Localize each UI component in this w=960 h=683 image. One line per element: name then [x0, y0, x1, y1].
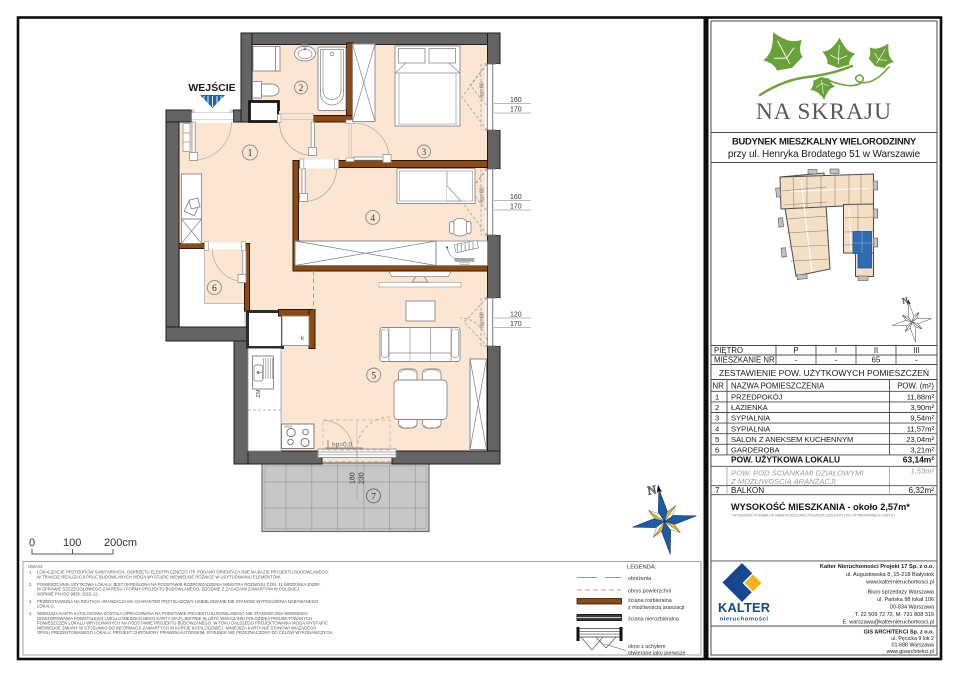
svg-text:hp=60: hp=60: [480, 82, 486, 97]
svg-text:ŁAZIENKA: ŁAZIENKA: [731, 403, 769, 412]
svg-text:NR: NR: [713, 382, 725, 391]
svg-text:170: 170: [510, 204, 522, 211]
svg-text:63,14m²: 63,14m²: [903, 455, 934, 465]
svg-text:3,90m²: 3,90m²: [910, 403, 934, 412]
svg-text:NORMIE PN-ISO 9836: 2015-12.: NORMIE PN-ISO 9836: 2015-12.: [37, 591, 99, 596]
svg-text:6: 6: [715, 446, 719, 455]
svg-text:-: -: [835, 356, 838, 365]
svg-text:170: 170: [510, 321, 522, 328]
svg-text:POW. UŻYTKOWA LOKALU: POW. UŻYTKOWA LOKALU: [731, 455, 840, 465]
svg-text:BUDYNEK MIESZKALNY WIELORODZIN: BUDYNEK MIESZKALNY WIELORODZINNY: [732, 136, 917, 147]
svg-text:-: -: [915, 356, 918, 365]
svg-text:NA SKRAJU: NA SKRAJU: [756, 99, 892, 125]
svg-text:przy ul. Henryka Brodatego 51: przy ul. Henryka Brodatego 51 w Warszawi…: [728, 149, 921, 160]
svg-text:65: 65: [872, 356, 881, 365]
svg-text:www.kalternieruchomosci.pl: www.kalternieruchomosci.pl: [865, 580, 934, 586]
svg-text:I: I: [835, 346, 837, 355]
svg-text:3.: 3.: [29, 599, 33, 604]
svg-text:SYPIALNIA: SYPIALNIA: [731, 424, 771, 433]
svg-text:* WYSOKOŚĆ PODANA OD NIEWYKOŃC: * WYSOKOŚĆ PODANA OD NIEWYKOŃCZONEJ POSA…: [731, 513, 895, 518]
svg-text:hp=0,0: hp=0,0: [332, 441, 352, 448]
svg-text:6,32m²: 6,32m²: [909, 486, 935, 495]
svg-text:-: -: [795, 356, 798, 365]
svg-text:okno z uchyłem: okno z uchyłem: [628, 644, 666, 650]
svg-text:9,54m²: 9,54m²: [910, 414, 934, 423]
svg-text:SYPIALNIA: SYPIALNIA: [731, 414, 771, 423]
svg-text:PRZEDPOKÓJ: PRZEDPOKÓJ: [731, 393, 783, 402]
svg-text:P: P: [793, 346, 798, 355]
svg-text:otwierane jako pierwsze: otwierane jako pierwsze: [628, 651, 686, 657]
svg-text:III: III: [913, 346, 920, 355]
svg-text:GARDEROBA: GARDEROBA: [731, 446, 780, 455]
svg-text:PRZEDSTAWIONA NA RZUTACH ARANŻ: PRZEDSTAWIONA NA RZUTACH ARANŻACJA MA CH…: [37, 599, 319, 604]
svg-text:2: 2: [299, 83, 304, 93]
svg-text:170: 170: [510, 107, 522, 114]
svg-text:ściana rozbieralna: ściana rozbieralna: [628, 598, 672, 604]
svg-text:nieruchomości: nieruchomości: [720, 617, 769, 623]
svg-text:www.gisarchitekci.pl: www.gisarchitekci.pl: [887, 649, 934, 655]
svg-text:0: 0: [29, 537, 35, 549]
svg-text:II: II: [874, 346, 878, 355]
svg-text:7: 7: [371, 492, 376, 502]
svg-text:SALON Z ANEKSEM KUCHENNYM: SALON Z ANEKSEM KUCHENNYM: [731, 435, 853, 444]
svg-text:POW. (m²): POW. (m²): [897, 382, 934, 391]
svg-text:7: 7: [715, 486, 720, 495]
svg-text:1,53m²: 1,53m²: [910, 467, 934, 476]
svg-text:UWAGI:: UWAGI:: [28, 564, 43, 569]
svg-text:z możliwością aranżacji: z możliwością aranżacji: [628, 605, 684, 611]
svg-text:4: 4: [715, 424, 719, 433]
svg-text:3,21m²: 3,21m²: [910, 446, 934, 455]
svg-text:23,04m²: 23,04m²: [906, 435, 934, 444]
svg-text:00-834 Warszawa: 00-834 Warszawa: [890, 605, 935, 611]
svg-text:5: 5: [371, 371, 376, 381]
svg-text:200cm: 200cm: [104, 537, 137, 549]
svg-text:OPISU PREZENTOWANEGO LOKALU. P: OPISU PREZENTOWANEGO LOKALU. PROJEKT CHR…: [37, 630, 333, 635]
svg-text:11,88m²: 11,88m²: [907, 393, 935, 402]
svg-text:1.: 1.: [29, 570, 33, 575]
svg-text:1: 1: [248, 148, 253, 159]
svg-text:ul. Augustowska 8, 15-218 Biał: ul. Augustowska 8, 15-218 Białystok: [846, 572, 934, 578]
svg-text:5: 5: [715, 435, 719, 444]
svg-text:BALKON: BALKON: [731, 486, 764, 495]
svg-text:2: 2: [715, 403, 719, 412]
svg-text:160: 160: [510, 194, 522, 201]
svg-text:4.: 4.: [29, 611, 33, 616]
svg-text:2.: 2.: [29, 582, 33, 587]
svg-text:obniżenia: obniżenia: [628, 576, 651, 582]
svg-text:E. warszawa@kalternieruchomosc: E. warszawa@kalternieruchomosci.pl: [843, 620, 934, 626]
svg-text:WYSOKOŚĆ MIESZKANIA - około 2,: WYSOKOŚĆ MIESZKANIA - około 2,57m*: [731, 501, 910, 512]
svg-text:KALTER: KALTER: [718, 600, 770, 615]
svg-text:100: 100: [63, 537, 81, 549]
svg-text:W TRAKCIE REALIZACJI PRAC BUDO: W TRAKCIE REALIZACJI PRAC BUDOWLANYCH MO…: [37, 574, 281, 579]
svg-text:4: 4: [370, 214, 375, 224]
svg-text:3: 3: [422, 147, 427, 157]
svg-text:ściana nierozbieralna: ściana nierozbieralna: [628, 617, 679, 623]
svg-text:ZESTAWIENIE POW. UŻYTKOWYCH PO: ZESTAWIENIE POW. UŻYTKOWYCH POMIESZCZEŃ: [719, 368, 929, 378]
svg-text:oooo: oooo: [284, 425, 292, 429]
svg-text:6: 6: [212, 284, 217, 294]
svg-text:MIESZKANIE NR: MIESZKANIE NR: [714, 356, 775, 365]
svg-text:LOKALU.: LOKALU.: [37, 604, 55, 609]
svg-text:120: 120: [510, 312, 522, 319]
svg-text:GIS ARCHITEKCI Sp. z o.o.: GIS ARCHITEKCI Sp. z o.o.: [864, 630, 935, 636]
svg-text:WEJŚCIE: WEJŚCIE: [188, 81, 235, 94]
svg-text:ul. Pańska 98 lokal 106: ul. Pańska 98 lokal 106: [877, 597, 934, 603]
svg-text:180: 180: [350, 472, 357, 484]
svg-text:ZM: ZM: [256, 389, 262, 397]
svg-text:Kalter Nieruchomości Projekt 1: Kalter Nieruchomości Projekt 17 Sp. z o.…: [820, 564, 935, 570]
svg-text:obrys powierzchni: obrys powierzchni: [628, 589, 671, 595]
svg-text:3: 3: [715, 414, 719, 423]
svg-text:hp=60: hp=60: [480, 187, 486, 202]
svg-text:Biuro sprzedaży Warszawa: Biuro sprzedaży Warszawa: [868, 590, 935, 596]
svg-text:NAZWA POMIESZCZENIA: NAZWA POMIESZCZENIA: [731, 382, 825, 391]
svg-text:160: 160: [510, 97, 522, 104]
svg-text:hp=60: hp=60: [480, 312, 486, 327]
svg-text:11,57m²: 11,57m²: [907, 424, 935, 433]
svg-text:1: 1: [715, 393, 719, 402]
svg-text:T. 22 509 72 72. M. 731 808 31: T. 22 509 72 72. M. 731 808 316: [855, 612, 934, 618]
svg-text:01-688 Warszawa: 01-688 Warszawa: [892, 643, 935, 649]
svg-text:230: 230: [359, 472, 366, 484]
svg-text:LEGENDA:: LEGENDA:: [627, 565, 657, 571]
svg-text:ul. Pęcicka 9 lok 2: ul. Pęcicka 9 lok 2: [891, 636, 934, 642]
svg-text:PIĘTRO: PIĘTRO: [714, 346, 743, 355]
